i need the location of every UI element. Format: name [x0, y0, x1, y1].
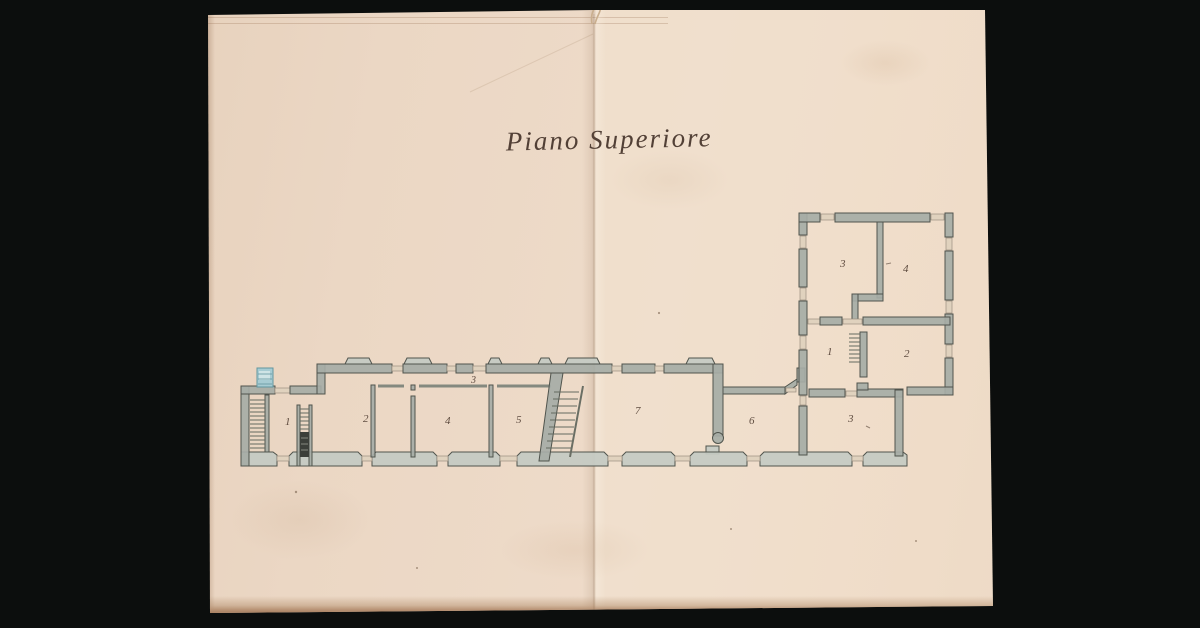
paper-creases: [295, 7, 917, 610]
wing-left-block: [241, 364, 325, 466]
room-label: 3: [847, 413, 854, 425]
floor-plan-drawing: 123457631234: [0, 0, 1200, 628]
left-stairwell: [250, 395, 269, 452]
room-label: 7: [635, 405, 641, 417]
room-label: 3: [470, 375, 476, 386]
block-stairs: [849, 332, 867, 377]
block-left-wall: [799, 213, 807, 455]
fold-thread: [592, 7, 601, 24]
room-label: 3: [839, 258, 846, 270]
room-label: 4: [445, 415, 451, 427]
wing-partitions: [371, 385, 551, 457]
room-label: 4: [903, 263, 909, 275]
blue-wash-feature: [257, 368, 273, 387]
room-label: 6: [749, 415, 755, 427]
room-label: 2: [904, 348, 910, 360]
paper-sheet: Piano Superiore: [0, 0, 1200, 628]
room-label: 5: [516, 414, 522, 426]
room-label: 1: [827, 346, 833, 358]
block-lower-room: [809, 383, 903, 456]
room-label: 1: [285, 416, 291, 428]
room-label: 2: [363, 413, 369, 425]
block-upper-rooms: [799, 213, 953, 395]
room-labels: 123457631234: [285, 258, 910, 428]
narrow-stair: [297, 405, 312, 466]
wing-top-wall: [317, 358, 723, 373]
wing-junction-walls: [713, 364, 806, 444]
scanned-plan-page: Piano Superiore: [0, 0, 1200, 628]
